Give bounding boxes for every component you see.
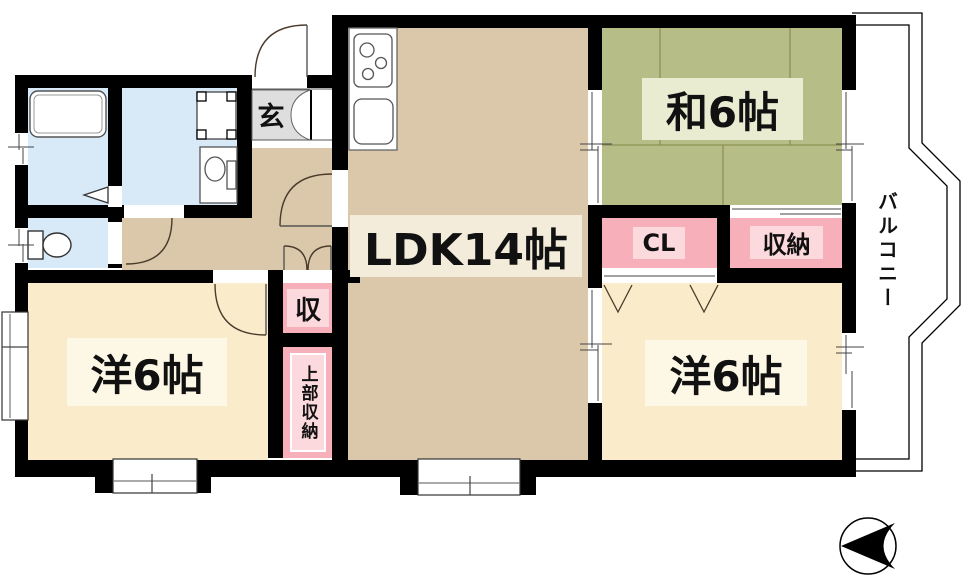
bifold-door-marks (604, 285, 718, 312)
closet-upper-label: 上部収納 (290, 353, 326, 452)
closet-double-door-arc (308, 246, 331, 270)
entrance-label: 玄 (257, 97, 285, 131)
cl-label: CL (633, 227, 685, 259)
bay-window (418, 459, 520, 495)
balcony-label: バルコニー (872, 178, 902, 323)
entrance-door-arc (255, 25, 307, 77)
bay-window (113, 459, 197, 493)
toilet-icon (28, 231, 71, 259)
bathtub-icon (30, 91, 106, 137)
washbasin-icon (200, 147, 237, 203)
sink-icon (354, 99, 393, 144)
western-left-door-arc (215, 284, 266, 335)
closet-hall-label: 収 (287, 289, 329, 327)
bay-window (2, 312, 28, 420)
ldk-door-arc (280, 174, 332, 226)
kitchen-counter (349, 28, 397, 150)
ldk-label: LDK14帖 (350, 215, 582, 277)
washing-machine-pan-icon (197, 92, 236, 139)
japanese-room-label: 和6帖 (642, 78, 803, 140)
closet-double-door-arc (284, 246, 307, 270)
bath-folding-door-mark (84, 187, 108, 203)
washroom-door-arc (126, 218, 172, 264)
western-room-right-label: 洋6帖 (645, 340, 807, 406)
floor-plan: LDK14帖 和6帖 洋6帖 洋6帖 CL 収納 収 上部収納 玄 バルコニー (0, 0, 968, 586)
oshiire-label: 収納 (750, 226, 823, 259)
north-arrow-icon (840, 518, 896, 574)
plan-detail-layer (0, 0, 968, 586)
western-room-left-label: 洋6帖 (67, 338, 227, 406)
balcony-outline (852, 13, 960, 471)
